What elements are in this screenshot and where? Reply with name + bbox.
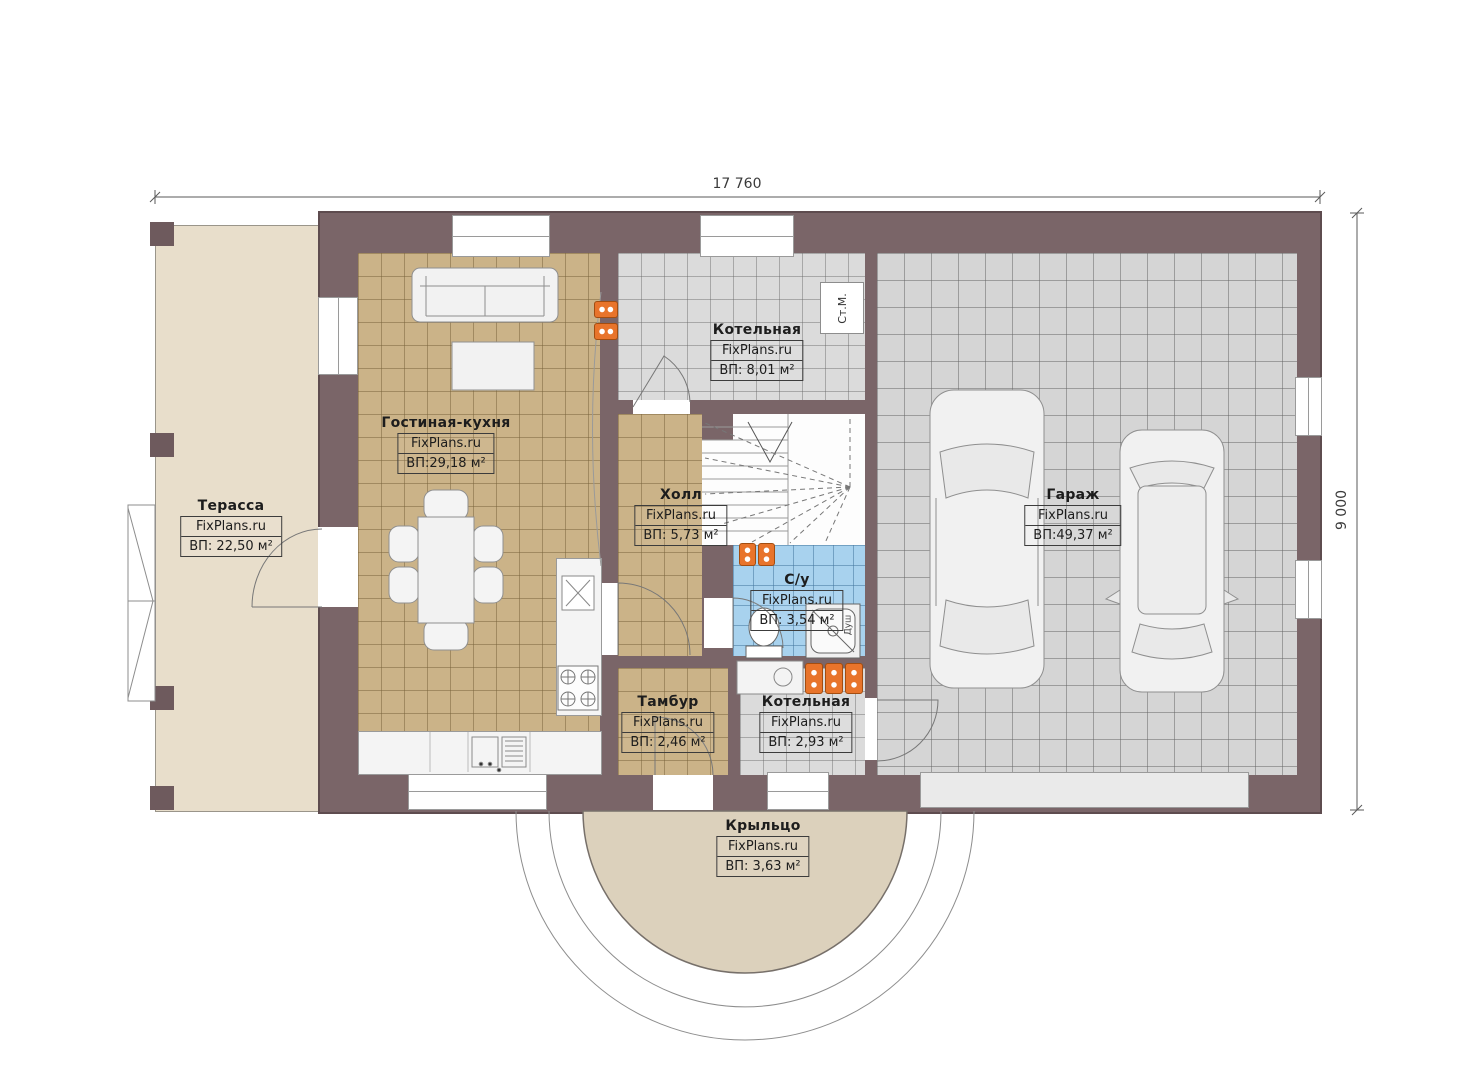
radiator-icon: [594, 301, 618, 318]
room-name: Гостиная-кухня: [381, 415, 510, 431]
room-area: ВП: 22,50 м²: [181, 536, 281, 556]
watermark: FixPlans.ru: [1025, 506, 1120, 525]
room-area: ВП:29,18 м²: [398, 453, 493, 473]
room-area: ВП: 3,63 м²: [717, 856, 808, 876]
watermark: FixPlans.ru: [622, 713, 713, 732]
room-label-terrace: Терасса FixPlans.ru ВП: 22,50 м²: [180, 498, 282, 557]
room-label-porch: Крыльцо FixPlans.ru ВП: 3,63 м²: [716, 818, 809, 877]
kitchen-sink: [562, 576, 594, 610]
room-name: Тамбур: [621, 694, 714, 710]
room-label-hall: Холл FixPlans.ru ВП: 5,73 м²: [634, 487, 727, 546]
room-name: Котельная: [710, 322, 803, 338]
washing-machine-label: Ст.М.: [820, 282, 864, 334]
watermark: FixPlans.ru: [635, 506, 726, 525]
room-label-bathroom: С/у FixPlans.ru ВП: 3,54 м²: [750, 572, 843, 631]
kitchen-stove: [558, 666, 598, 710]
watermark: FixPlans.ru: [760, 713, 851, 732]
room-area: ВП: 3,54 м²: [751, 610, 842, 630]
floor-plan-canvas: Ст.М. Душ 17 760 9 000 Терасса FixPlans.…: [0, 0, 1474, 1080]
radiator-icon: [758, 543, 775, 566]
boiler-unit: [737, 661, 803, 694]
room-area: ВП: 5,73 м²: [635, 525, 726, 545]
radiator-icon: [825, 663, 843, 694]
watermark: FixPlans.ru: [711, 341, 802, 360]
dining-set: [389, 490, 503, 650]
dimension-height: 9 000: [1332, 470, 1352, 550]
room-label-boiler2: Котельная FixPlans.ru ВП: 2,93 м²: [759, 694, 852, 753]
dimension-width: 17 760: [713, 176, 762, 192]
watermark: FixPlans.ru: [717, 837, 808, 856]
room-label-boiler: Котельная FixPlans.ru ВП: 8,01 м²: [710, 322, 803, 381]
room-area: ВП: 2,93 м²: [760, 732, 851, 752]
watermark: FixPlans.ru: [398, 434, 493, 453]
radiator-icon: [845, 663, 863, 694]
room-area: ВП: 8,01 м²: [711, 360, 802, 380]
room-label-garage: Гараж FixPlans.ru ВП:49,37 м²: [1024, 487, 1121, 546]
room-area: ВП: 2,46 м²: [622, 732, 713, 752]
coffee-table: [452, 342, 534, 390]
car-suv: [1106, 430, 1238, 692]
room-name: Холл: [634, 487, 727, 503]
room-name: Терасса: [180, 498, 282, 514]
room-area: ВП:49,37 м²: [1025, 525, 1120, 545]
radiator-icon: [805, 663, 823, 694]
room-label-living-kitchen: Гостиная-кухня FixPlans.ru ВП:29,18 м²: [381, 415, 510, 474]
counter-sink-unit: [430, 732, 530, 772]
room-label-vestibule: Тамбур FixPlans.ru ВП: 2,46 м²: [621, 694, 714, 753]
room-name: С/у: [750, 572, 843, 588]
sofa: [412, 268, 558, 322]
radiator-icon: [594, 323, 618, 340]
radiator-icon: [739, 543, 756, 566]
side-steps: [128, 505, 155, 701]
watermark: FixPlans.ru: [751, 591, 842, 610]
room-name: Котельная: [759, 694, 852, 710]
room-name: Крыльцо: [716, 818, 809, 834]
watermark: FixPlans.ru: [181, 517, 281, 536]
room-name: Гараж: [1024, 487, 1121, 503]
